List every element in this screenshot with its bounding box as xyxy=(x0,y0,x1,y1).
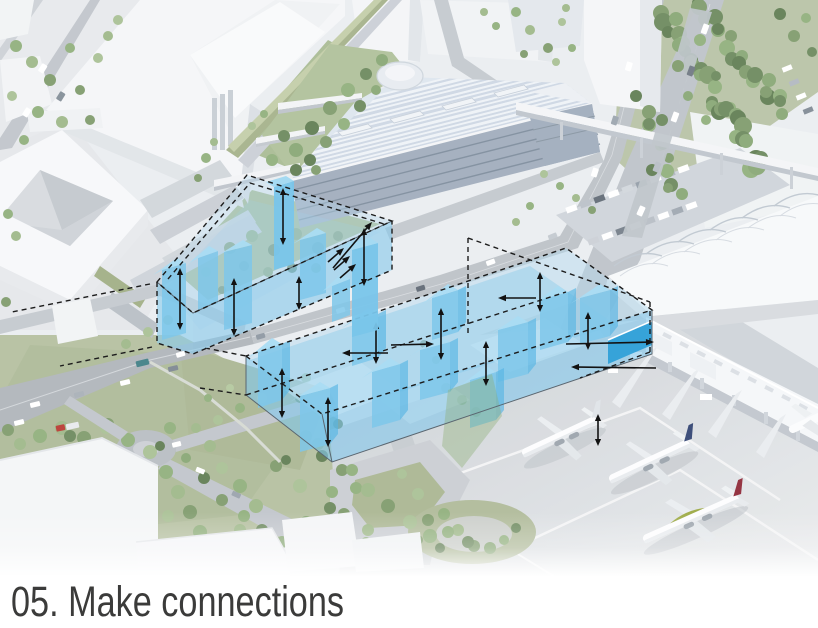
svg-text:05. Make connections: 05. Make connections xyxy=(11,578,344,626)
